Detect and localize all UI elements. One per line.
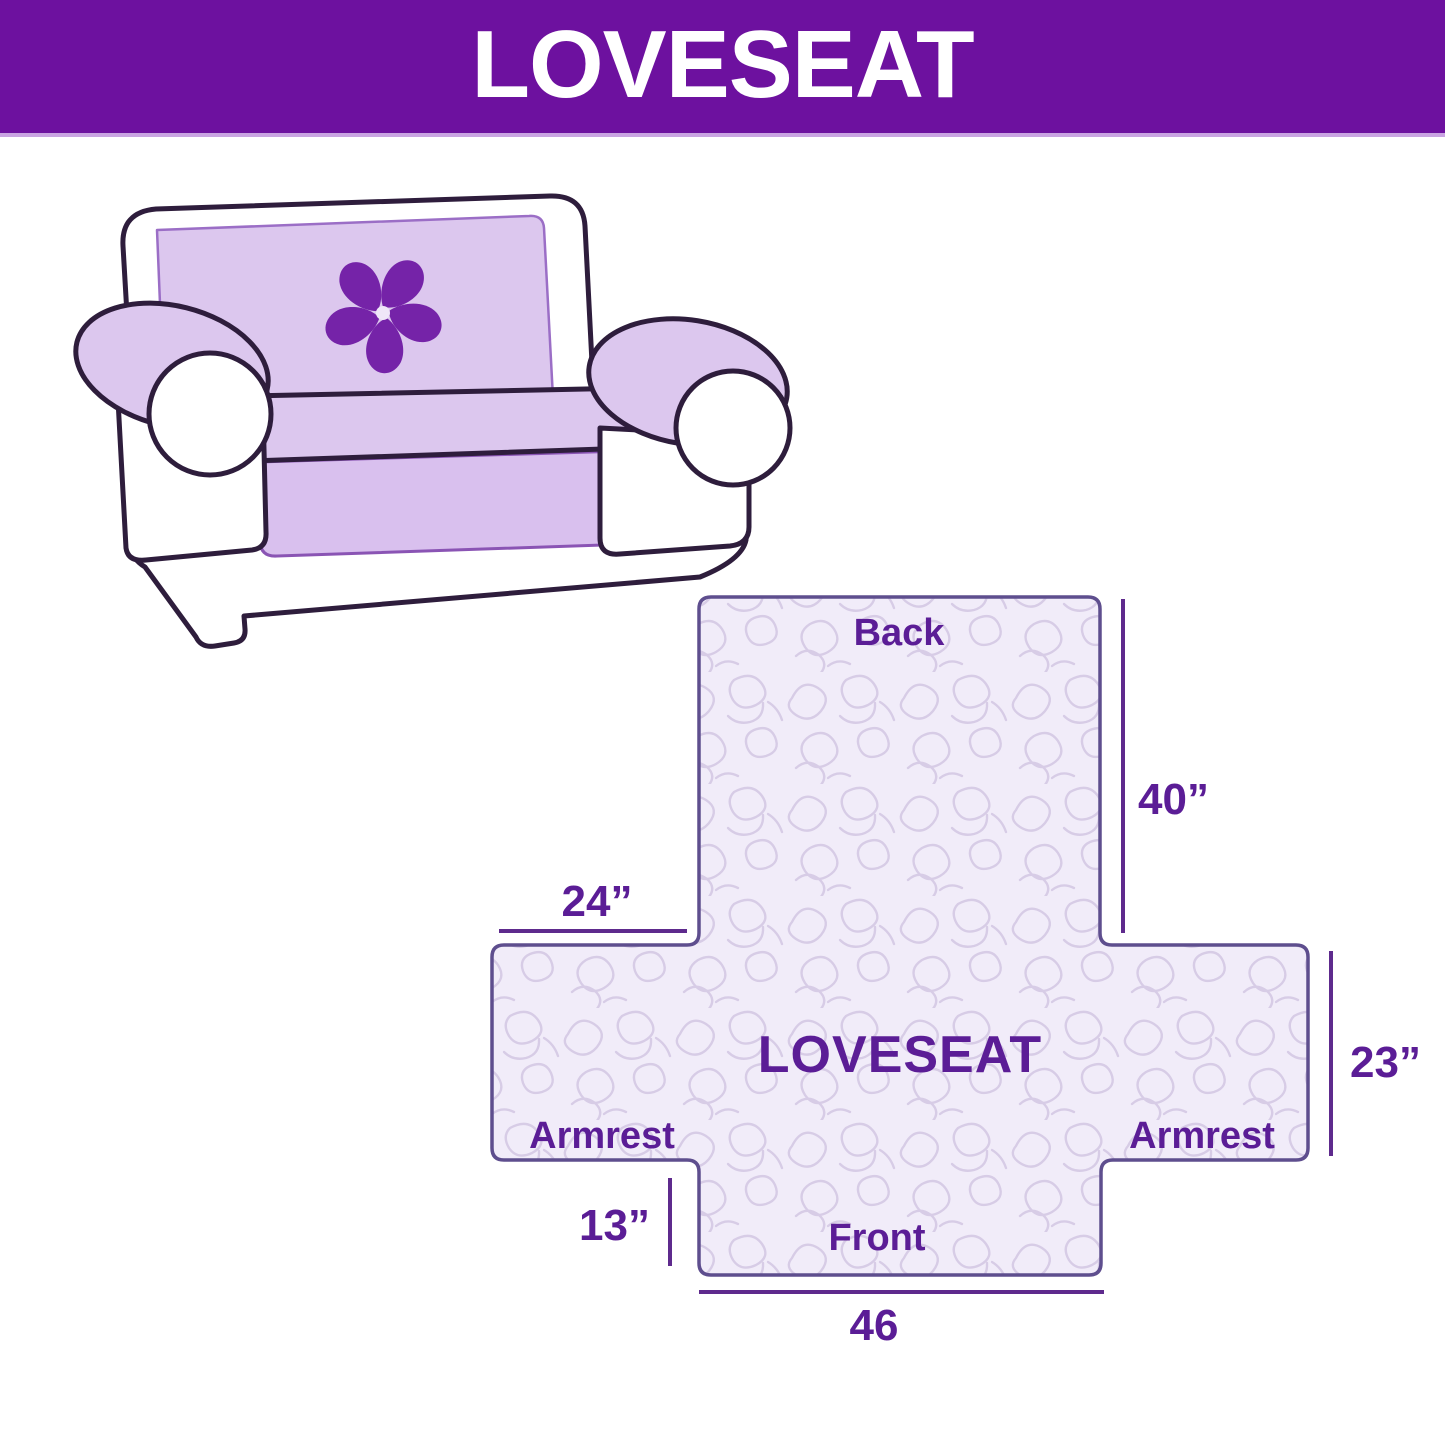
label-armrest-right: Armrest (1129, 1115, 1275, 1157)
dim-side-height: 23” (1350, 1038, 1421, 1087)
dim-back-height: 40” (1138, 775, 1209, 824)
dim-front-height: 13” (579, 1201, 650, 1250)
label-back: Back (854, 612, 946, 654)
quilt-pattern (492, 597, 1308, 1275)
label-front: Front (828, 1217, 925, 1259)
cover-diagram: Back LOVESEAT Armrest Armrest Front 40” … (0, 0, 1445, 1445)
label-loveseat-center: LOVESEAT (758, 1026, 1042, 1084)
page: LOVESEAT (0, 0, 1445, 1445)
dim-front-width: 46 (850, 1301, 899, 1350)
label-armrest-left: Armrest (529, 1115, 675, 1157)
dim-armrest-width: 24” (562, 877, 633, 926)
